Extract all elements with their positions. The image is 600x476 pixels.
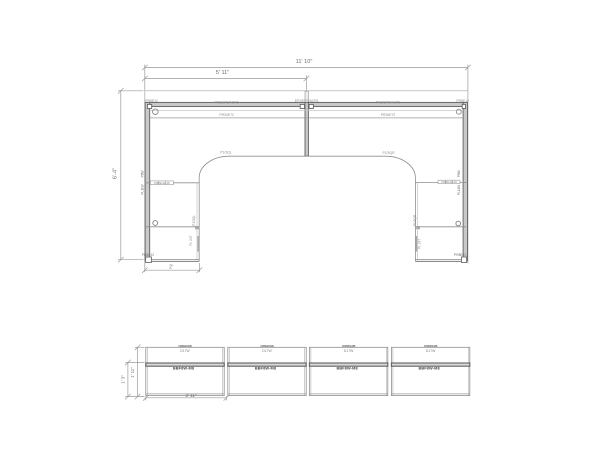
svg-text:PR8E12: PR8E12	[454, 253, 466, 257]
svg-text:BBF8W-M8: BBF8W-M8	[173, 366, 195, 371]
svg-text:1' 3": 1' 3"	[120, 375, 125, 384]
svg-text:PL 24T: PL 24T	[417, 239, 421, 249]
svg-text:D17W: D17W	[262, 349, 272, 353]
svg-text:PL11W: PL11W	[141, 184, 145, 194]
svg-text:BBF8W-M8: BBF8W-M8	[336, 366, 358, 371]
svg-text:P1/3QL: P1/3QL	[220, 150, 232, 154]
svg-text:PR8E42-48: PR8E42-48	[441, 180, 457, 184]
svg-text:11' 10": 11' 10"	[296, 59, 313, 65]
svg-text:PR30E72: PR30E72	[381, 113, 396, 117]
svg-text:P8W: P8W	[457, 170, 461, 177]
svg-text:PR8E12: PR8E12	[142, 253, 154, 257]
svg-text:6'-4": 6'-4"	[113, 168, 119, 179]
svg-text:D17W: D17W	[180, 349, 190, 353]
svg-text:P1/3QR: P1/3QR	[413, 214, 417, 226]
svg-text:1' 11": 1' 11"	[130, 367, 135, 378]
svg-text:BBF8W-M8: BBF8W-M8	[418, 366, 440, 371]
svg-text:P1/3QR: P1/3QR	[382, 151, 395, 155]
svg-text:P8W: P8W	[141, 170, 145, 177]
svg-text:BBF8W-M8: BBF8W-M8	[255, 366, 277, 371]
svg-text:2': 2'	[169, 264, 173, 270]
svg-text:2' 11": 2' 11"	[185, 393, 196, 398]
svg-text:PR8E12: PR8E12	[145, 99, 158, 103]
svg-text:D17W: D17W	[426, 349, 436, 353]
svg-text:PR8E42-48: PR8E42-48	[154, 181, 170, 185]
svg-text:EP2/EP3/ACR1: EP2/EP3/ACR1	[295, 99, 319, 103]
svg-text:5' 11": 5' 11"	[216, 70, 230, 76]
svg-text:PR30E72: PR30E72	[219, 113, 234, 117]
svg-text:PR8E12: PR8E12	[456, 99, 469, 103]
svg-text:PR3/EP3/ACR6: PR3/EP3/ACR6	[215, 100, 239, 104]
svg-text:D17W: D17W	[344, 349, 354, 353]
svg-text:PL 24T: PL 24T	[189, 235, 193, 245]
svg-text:PL11W: PL11W	[457, 185, 461, 195]
svg-text:P1/3QL: P1/3QL	[192, 215, 196, 226]
svg-text:PR3/EP3/ACR6: PR3/EP3/ACR6	[376, 100, 400, 104]
